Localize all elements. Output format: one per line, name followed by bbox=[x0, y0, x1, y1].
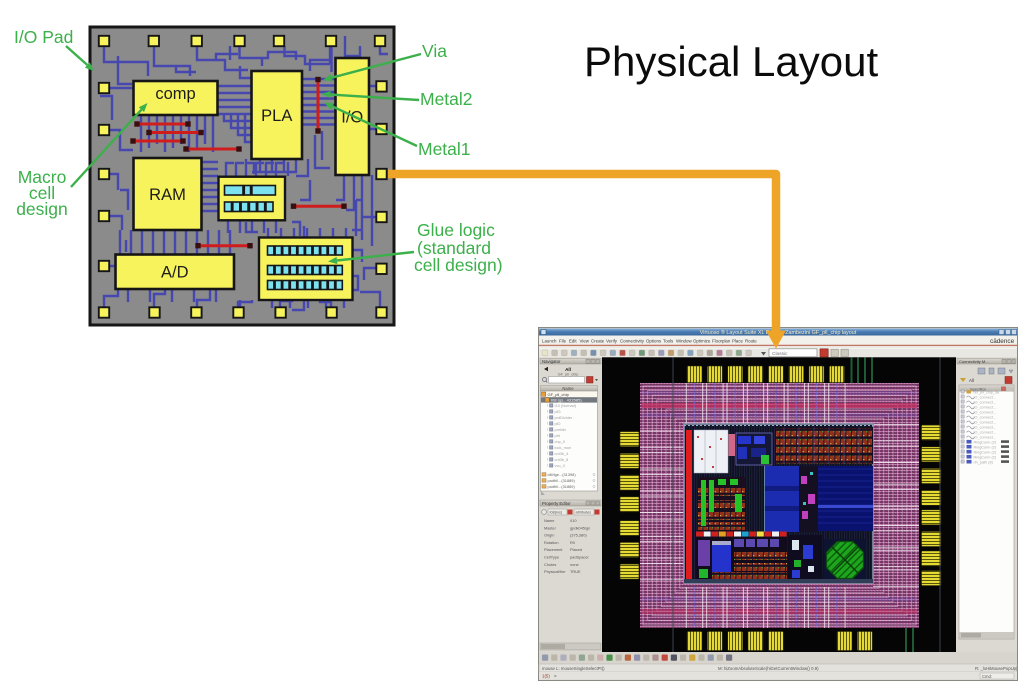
svg-text:rln_path (8): rln_path (8) bbox=[974, 461, 994, 465]
svg-text:padfrll...(31889): padfrll...(31889) bbox=[548, 478, 576, 483]
svg-text:I/O Pad: I/O Pad bbox=[14, 27, 73, 47]
svg-text:M: hiZoomAbsoluteScale(hiGetCu: M: hiZoomAbsoluteScale(hiGetCurrentWindo… bbox=[718, 666, 819, 671]
svg-text:A/D: A/D bbox=[161, 264, 189, 282]
svg-text:IO_connect...: IO_connect... bbox=[974, 401, 997, 405]
svg-text:ref_pll_chip_58: ref_pll_chip_58 bbox=[974, 391, 1000, 395]
svg-text:GF_pll_chip: GF_pll_chip bbox=[558, 372, 579, 377]
svg-text:GF_pll_chip: GF_pll_chip bbox=[548, 392, 570, 397]
svg-text:Property Editor: Property Editor bbox=[542, 501, 571, 506]
svg-text:>: > bbox=[554, 674, 557, 679]
svg-text:RingConn (2): RingConn (2) bbox=[974, 456, 997, 460]
svg-text:padSpacer: padSpacer bbox=[570, 555, 590, 560]
svg-text:R: _lxHiMousePopUp(): R: _lxHiMousePopUp() bbox=[975, 666, 1018, 671]
svg-text:IO_connect...: IO_connect... bbox=[974, 436, 997, 440]
svg-text:RingConn (2): RingConn (2) bbox=[974, 441, 997, 445]
svg-text:Rotation: Rotation bbox=[544, 540, 559, 545]
svg-text:none: none bbox=[570, 562, 579, 567]
svg-text:IO_connect...: IO_connect... bbox=[974, 426, 997, 430]
svg-text:Navigator: Navigator bbox=[542, 359, 561, 364]
svg-text:(375,380): (375,380) bbox=[570, 533, 587, 538]
svg-text:RAM: RAM bbox=[149, 186, 186, 204]
svg-text:Metal2: Metal2 bbox=[420, 89, 473, 109]
svg-text:Origin: Origin bbox=[544, 533, 554, 538]
svg-text:pfd: pfd bbox=[555, 433, 560, 438]
svg-text:Name: Name bbox=[544, 518, 554, 523]
svg-text:Master: Master bbox=[544, 525, 557, 530]
svg-text:Placed: Placed bbox=[570, 547, 582, 552]
svg-text:1(5): 1(5) bbox=[542, 674, 550, 679]
svg-text:comp: comp bbox=[155, 85, 195, 103]
svg-text:IO_connect...: IO_connect... bbox=[974, 431, 997, 435]
svg-text:cādence: cādence bbox=[990, 338, 1015, 345]
svg-text:IO_connect...: IO_connect... bbox=[974, 411, 997, 415]
svg-text:I10 (Nomad): I10 (Nomad) bbox=[555, 403, 577, 408]
svg-text:Chutes: Chutes bbox=[544, 562, 556, 567]
svg-text:padfrll...(31889): padfrll...(31889) bbox=[548, 484, 576, 489]
svg-text:I08(ins): I08(ins) bbox=[550, 511, 563, 515]
svg-text:prdDivider: prdDivider bbox=[555, 415, 573, 420]
svg-text:attributes: attributes bbox=[576, 511, 592, 515]
svg-text:pll2: pll2 bbox=[555, 421, 561, 426]
svg-text:Name: Name bbox=[562, 386, 574, 391]
svg-text:I08 (gs...4315B5): I08 (gs...4315B5) bbox=[551, 398, 582, 403]
svg-text:Metal1: Metal1 bbox=[418, 139, 471, 159]
svg-text:All: All bbox=[969, 378, 974, 383]
svg-text:/I10: /I10 bbox=[570, 518, 577, 523]
svg-text:cltMge...(31398): cltMge...(31398) bbox=[548, 472, 577, 477]
svg-text:gpdk045/gn: gpdk045/gn bbox=[570, 525, 590, 530]
svg-text:IO_connect...: IO_connect... bbox=[974, 421, 997, 425]
svg-text:PhysicalHier: PhysicalHier bbox=[544, 569, 566, 574]
svg-text:IO_connect...: IO_connect... bbox=[974, 416, 997, 420]
svg-text:lock_mon: lock_mon bbox=[555, 445, 572, 450]
svg-text:PLA: PLA bbox=[261, 107, 292, 125]
svg-text:mouse L: mouseSingleSelectPt(): mouse L: mouseSingleSelectPt() bbox=[542, 666, 605, 671]
svg-text:prefdiv: prefdiv bbox=[555, 427, 567, 432]
svg-text:vco_0: vco_0 bbox=[555, 463, 566, 468]
svg-text:RingConn (2): RingConn (2) bbox=[974, 451, 997, 455]
svg-text:CellType: CellType bbox=[544, 555, 559, 560]
svg-text:cnt3b_8: cnt3b_8 bbox=[555, 457, 569, 462]
svg-text:Via: Via bbox=[422, 41, 447, 61]
svg-text:IO_connect...: IO_connect... bbox=[974, 396, 997, 400]
svg-text:IO_connect...: IO_connect... bbox=[974, 406, 997, 410]
svg-text:RingConn (2): RingConn (2) bbox=[974, 446, 997, 450]
svg-text:cnt3b_4: cnt3b_4 bbox=[555, 451, 570, 456]
svg-text:design: design bbox=[16, 199, 68, 219]
svg-text:pll3: pll3 bbox=[555, 409, 561, 414]
svg-text:R0: R0 bbox=[570, 540, 576, 545]
svg-text:Cmd:: Cmd: bbox=[982, 674, 992, 679]
svg-text:Placement: Placement bbox=[544, 547, 563, 552]
svg-text:TRUE: TRUE bbox=[570, 569, 581, 574]
svg-text:chp_0: chp_0 bbox=[555, 439, 566, 444]
svg-text:Connectivity M...: Connectivity M... bbox=[959, 359, 989, 364]
